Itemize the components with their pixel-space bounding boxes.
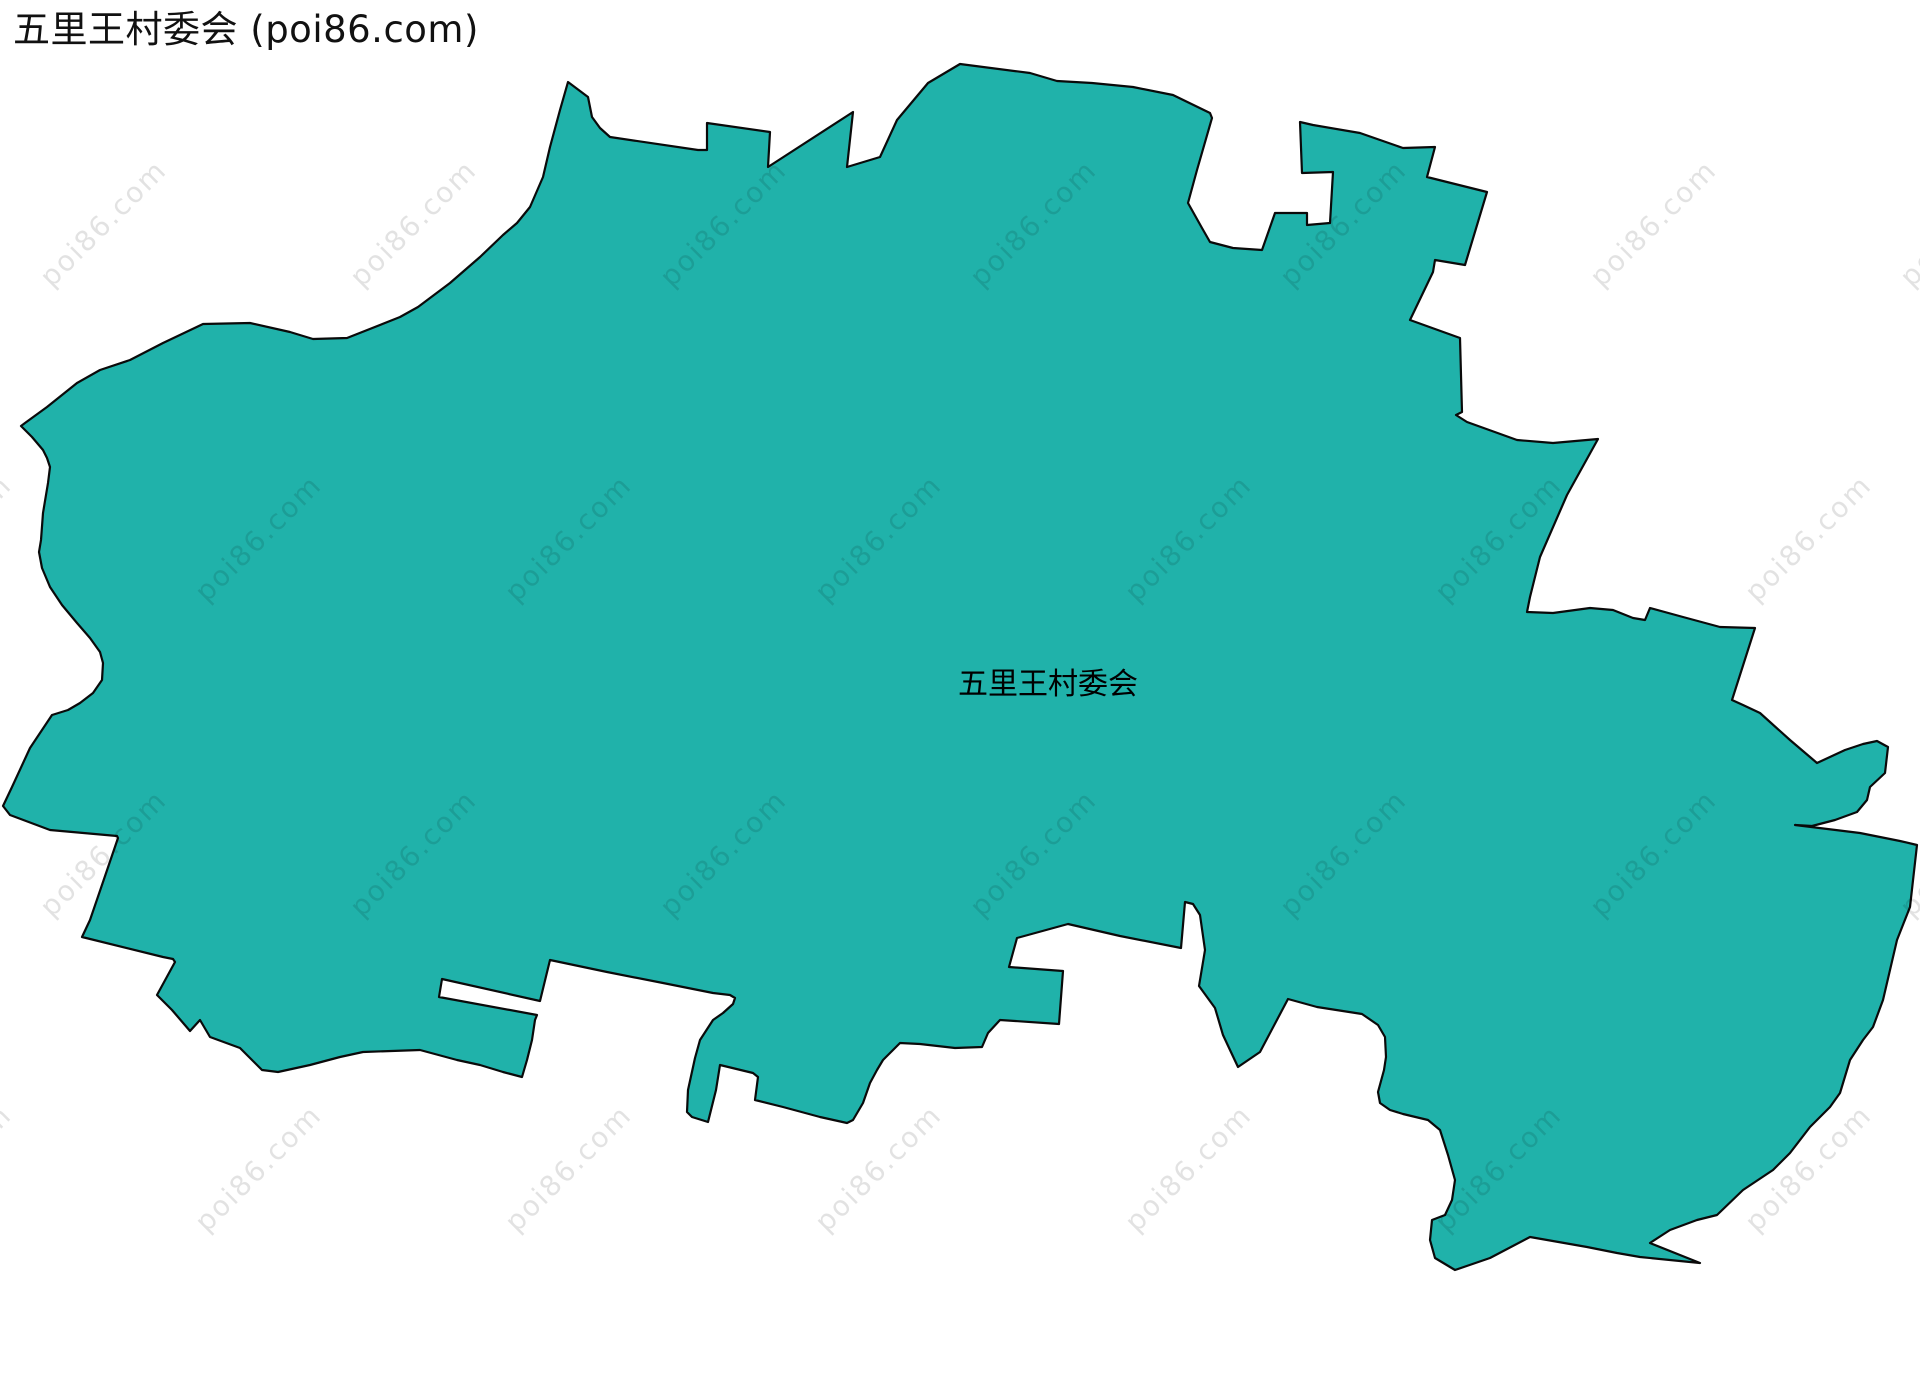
map-canvas: poi86.compoi86.compoi86.compoi86.compoi8… xyxy=(0,0,1920,1375)
watermark: poi86.com xyxy=(1738,468,1878,608)
watermark: poi86.com xyxy=(1893,153,1920,293)
region-label: 五里王村委会 xyxy=(958,667,1138,702)
map-title: 五里王村委会 (poi86.com) xyxy=(13,8,479,52)
watermark: poi86.com xyxy=(0,1098,18,1238)
watermark: poi86.com xyxy=(188,1098,328,1238)
watermark: poi86.com xyxy=(0,468,18,608)
watermark: poi86.com xyxy=(33,153,173,293)
watermark: poi86.com xyxy=(1583,153,1723,293)
watermark: poi86.com xyxy=(498,1098,638,1238)
watermark: poi86.com xyxy=(1118,1098,1258,1238)
region-map: poi86.compoi86.compoi86.compoi86.compoi8… xyxy=(0,0,1920,1375)
